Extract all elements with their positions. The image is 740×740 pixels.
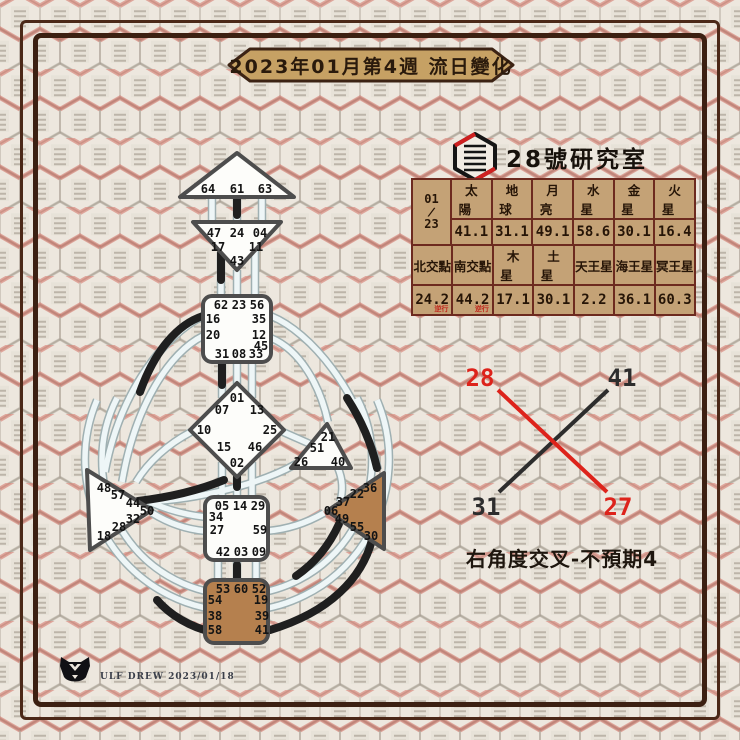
gate-number: 15 (217, 440, 231, 454)
gate-number: 03 (234, 545, 248, 559)
gate-number: 09 (252, 545, 266, 559)
gate-number: 14 (233, 499, 247, 513)
gate-number: 13 (250, 403, 264, 417)
gate-number: 29 (251, 499, 265, 513)
gate-number: 33 (249, 347, 263, 361)
gate-number: 42 (216, 545, 230, 559)
wolf-logo-icon (58, 655, 92, 685)
gate-number: 35 (252, 312, 266, 326)
gate-number: 50 (140, 504, 154, 518)
gate-number: 63 (258, 182, 272, 196)
gate-number: 04 (253, 226, 267, 240)
cross-gate-bottom-right: 27 (604, 493, 633, 521)
gate-number: 16 (206, 312, 220, 326)
gate-number: 41 (255, 623, 269, 637)
gate-number: 26 (294, 455, 308, 469)
gate-number: 39 (255, 609, 269, 623)
footer: ULF DREW 2023/01/18 (58, 655, 235, 685)
gate-number: 59 (253, 523, 267, 537)
gate-number: 23 (232, 298, 246, 312)
gate-number: 60 (234, 582, 248, 596)
gate-number: 49 (335, 512, 349, 526)
gate-number: 34 (209, 510, 223, 524)
gate-number: 27 (210, 523, 224, 537)
gate-number: 28 (112, 520, 126, 534)
cross-gate-top-right: 41 (608, 364, 637, 392)
gate-number: 02 (230, 456, 244, 470)
gate-number: 47 (207, 226, 221, 240)
gate-number: 31 (215, 347, 229, 361)
gate-number: 43 (230, 254, 244, 268)
gate-number: 11 (249, 240, 263, 254)
gate-number: 61 (230, 182, 244, 196)
gate-number: 22 (350, 487, 364, 501)
gate-number: 40 (331, 455, 345, 469)
cross-caption: 右角度交叉-不預期4 (438, 543, 686, 572)
gate-number: 48 (97, 481, 111, 495)
gate-number: 17 (211, 240, 225, 254)
credit-text: ULF DREW 2023/01/18 (100, 672, 235, 682)
poster-canvas: 2023年01月第4週 流日變化 28號研究室 01 / 23 (0, 0, 740, 740)
gate-number: 20 (206, 328, 220, 342)
gate-number: 07 (215, 403, 229, 417)
gate-number: 01 (230, 391, 244, 405)
gate-number: 25 (263, 423, 277, 437)
gate-number: 51 (310, 441, 324, 455)
gate-number: 55 (350, 520, 364, 534)
incarnation-cross-diagram: 28 41 31 27 (440, 352, 680, 532)
gate-number: 36 (363, 481, 377, 495)
gate-number: 30 (364, 529, 378, 543)
gate-number: 57 (111, 488, 125, 502)
cross-gate-bottom-left: 31 (472, 493, 501, 521)
gate-number: 32 (126, 512, 140, 526)
gate-number: 56 (250, 298, 264, 312)
gate-number: 62 (214, 298, 228, 312)
gate-number: 08 (232, 347, 246, 361)
gate-number: 58 (208, 623, 222, 637)
gate-number: 64 (201, 182, 215, 196)
gate-number: 10 (197, 423, 211, 437)
gate-number: 24 (230, 226, 244, 240)
gate-number: 44 (126, 496, 140, 510)
gate-number: 38 (208, 609, 222, 623)
gate-number: 46 (248, 440, 262, 454)
cross-gate-top-left: 28 (466, 364, 495, 392)
gate-number: 19 (254, 593, 268, 607)
gate-number: 54 (208, 593, 222, 607)
gate-number: 18 (97, 529, 111, 543)
